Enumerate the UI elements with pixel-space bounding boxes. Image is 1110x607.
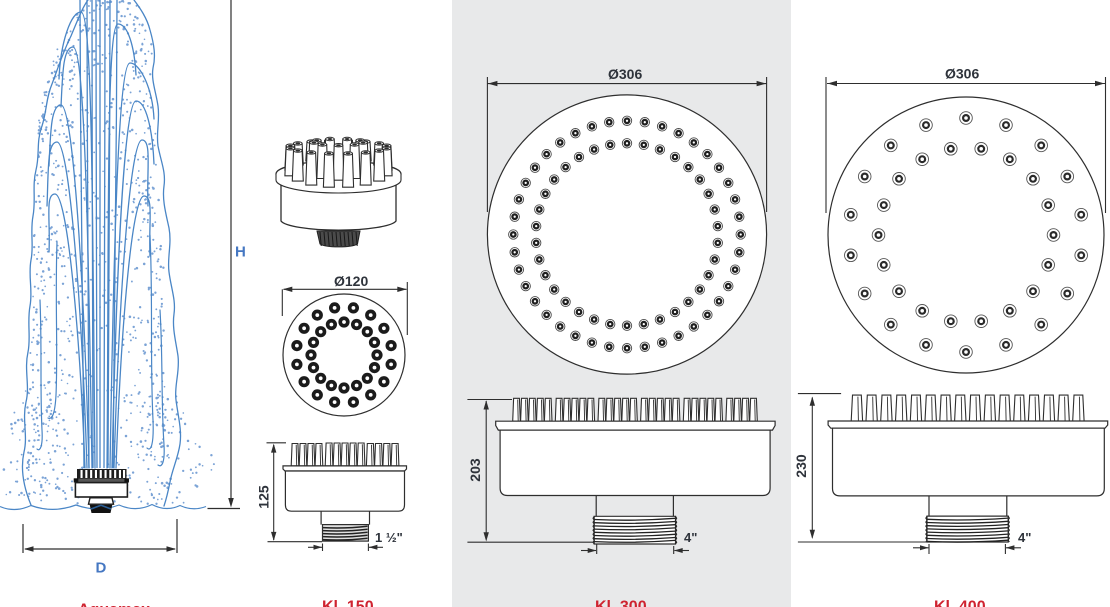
svg-text:H: H [235,244,246,261]
svg-text:Kl. 400: Kl. 400 [934,599,986,607]
svg-text:4": 4" [684,530,697,545]
svg-text:125: 125 [256,485,272,509]
svg-text:203: 203 [467,458,483,482]
svg-text:1 ½": 1 ½" [375,530,403,545]
svg-text:230: 230 [793,454,809,478]
svg-text:Ø306: Ø306 [608,66,642,82]
svg-text:Ø306: Ø306 [945,66,979,82]
svg-text:Kl. 300: Kl. 300 [595,599,647,607]
svg-text:Aquamax: Aquamax [78,602,150,607]
svg-text:Kl. 150: Kl. 150 [322,599,374,607]
svg-text:4": 4" [1018,530,1031,545]
svg-text:Ø120: Ø120 [334,273,368,289]
svg-text:D: D [96,560,107,577]
